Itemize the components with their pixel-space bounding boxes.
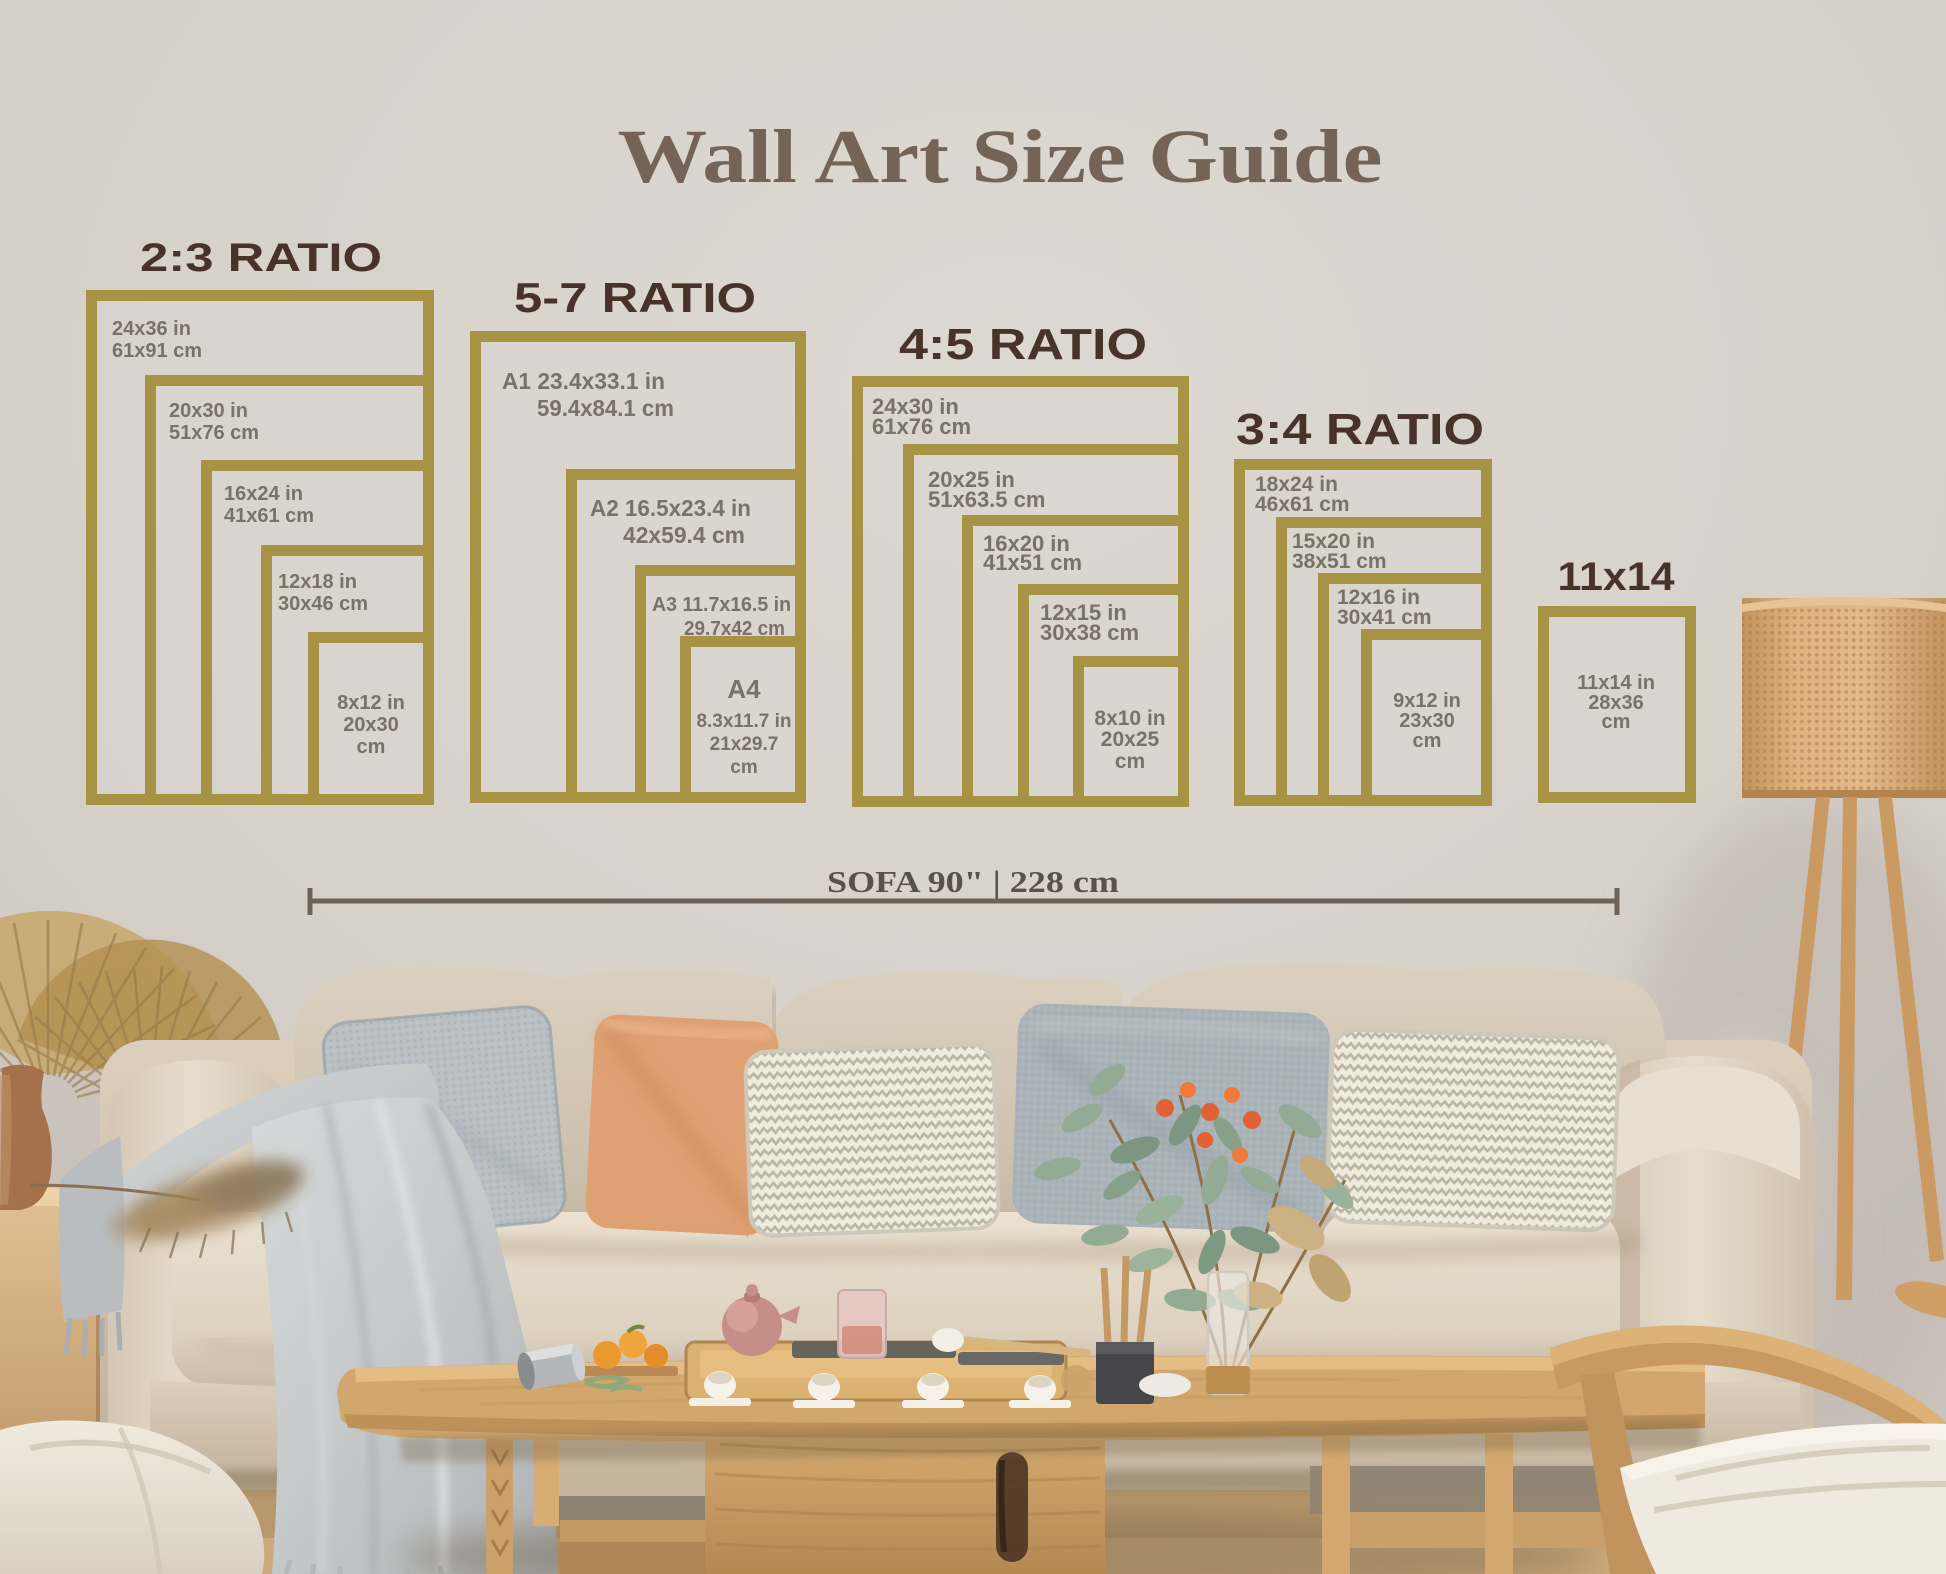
svg-text:4:5 RATIO: 4:5 RATIO [899,320,1147,369]
svg-text:11x14 in: 11x14 in [1577,672,1655,694]
svg-text:Wall Art Size Guide: Wall Art Size Guide [618,115,1383,199]
svg-text:8.3x11.7 in: 8.3x11.7 in [696,711,791,732]
svg-text:cm: cm [357,736,386,758]
svg-text:A2 16.5x23.4 in: A2 16.5x23.4 in [590,495,751,521]
svg-text:11x14: 11x14 [1558,555,1676,599]
svg-text:30x38 cm: 30x38 cm [1040,620,1139,645]
svg-text:20x30: 20x30 [343,714,399,736]
svg-text:20x30 in: 20x30 in [169,400,248,422]
svg-text:20x25: 20x25 [1101,728,1160,751]
svg-text:3:4 RATIO: 3:4 RATIO [1236,405,1484,454]
svg-text:8x12 in: 8x12 in [337,692,405,714]
svg-text:51x76 cm: 51x76 cm [169,422,259,444]
svg-text:41x51 cm: 41x51 cm [983,550,1082,575]
svg-text:24x36 in: 24x36 in [112,318,191,340]
svg-text:59.4x84.1 cm: 59.4x84.1 cm [537,395,674,421]
svg-text:21x29.7: 21x29.7 [710,734,779,755]
svg-text:A1 23.4x33.1 in: A1 23.4x33.1 in [502,368,665,394]
svg-text:cm: cm [730,757,757,778]
svg-text:30x46 cm: 30x46 cm [278,593,368,615]
svg-text:46x61 cm: 46x61 cm [1255,493,1350,516]
svg-text:61x91 cm: 61x91 cm [112,340,202,362]
svg-text:SOFA 90" | 228 cm: SOFA 90" | 228 cm [827,864,1119,899]
svg-text:41x61 cm: 41x61 cm [224,505,314,527]
svg-text:23x30: 23x30 [1399,710,1455,732]
svg-text:cm: cm [1602,711,1631,733]
svg-text:cm: cm [1413,730,1442,752]
svg-text:A4: A4 [727,674,761,704]
svg-text:29.7x42 cm: 29.7x42 cm [684,618,785,640]
svg-text:61x76 cm: 61x76 cm [872,414,971,439]
svg-text:16x24 in: 16x24 in [224,483,303,505]
svg-text:42x59.4 cm: 42x59.4 cm [623,522,745,548]
svg-text:30x41 cm: 30x41 cm [1337,606,1432,629]
svg-text:5-7 RATIO: 5-7 RATIO [514,274,756,321]
svg-text:8x10 in: 8x10 in [1094,707,1165,730]
svg-text:38x51 cm: 38x51 cm [1292,550,1387,573]
svg-text:9x12 in: 9x12 in [1393,690,1461,712]
svg-text:51x63.5 cm: 51x63.5 cm [928,487,1045,512]
svg-text:cm: cm [1115,750,1145,773]
svg-text:A3 11.7x16.5 in: A3 11.7x16.5 in [652,594,791,616]
svg-text:12x18 in: 12x18 in [278,571,357,593]
svg-text:2:3 RATIO: 2:3 RATIO [140,236,382,280]
